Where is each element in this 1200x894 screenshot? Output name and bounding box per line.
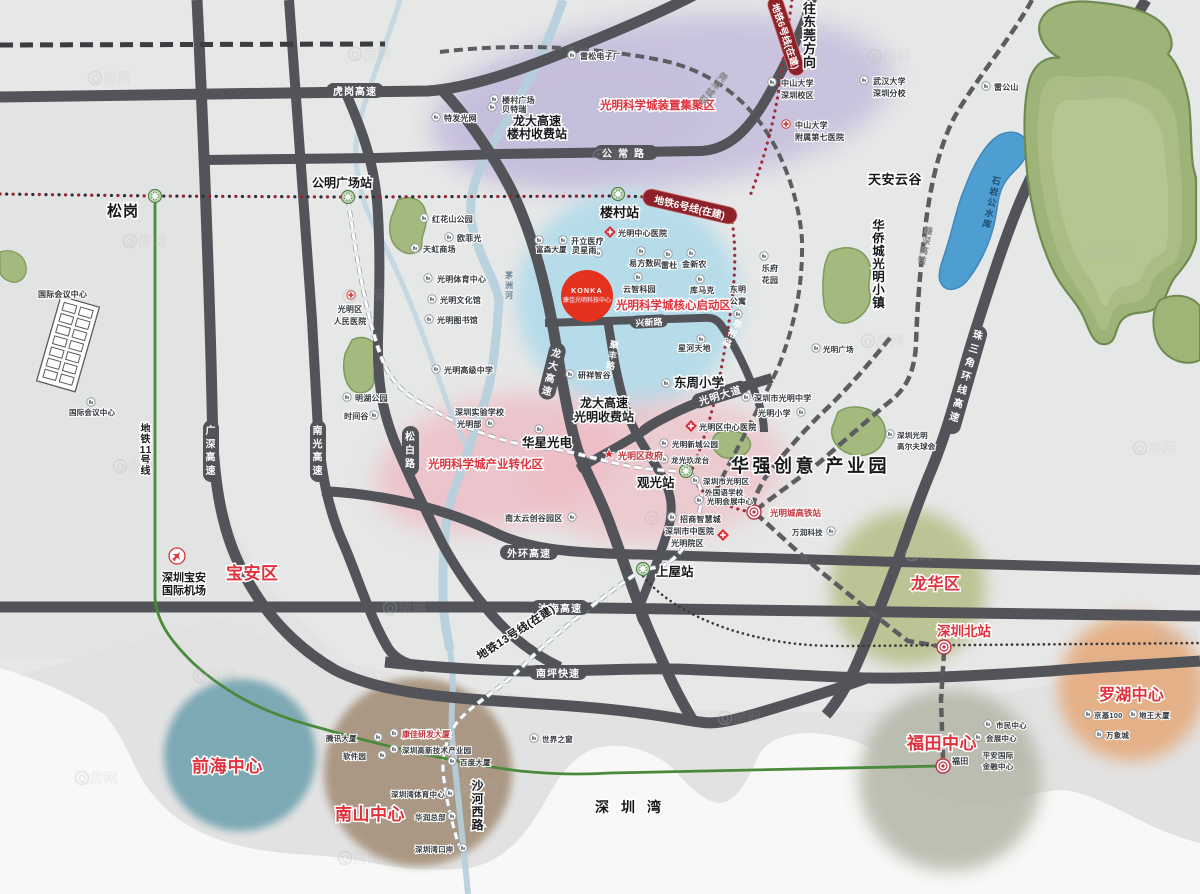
svg-text:研祥智谷: 研祥智谷 [578, 370, 612, 380]
svg-text:光明区中心医院: 光明区中心医院 [698, 422, 756, 432]
svg-text:星河天地: 星河天地 [678, 343, 711, 353]
svg-text:国际会议中心: 国际会议中心 [38, 289, 87, 299]
svg-text:楼村收费站: 楼村收费站 [507, 126, 567, 141]
svg-text:人民医院: 人民医院 [334, 316, 367, 326]
svg-text:光明广场: 光明广场 [822, 344, 854, 354]
svg-text:光明科学城产业转化区: 光明科学城产业转化区 [427, 457, 543, 471]
svg-text:深圳光明: 深圳光明 [897, 430, 928, 440]
svg-text:楼村广场: 楼村广场 [502, 95, 535, 105]
svg-text:前海中心: 前海中心 [192, 756, 263, 776]
svg-text:欧菲光: 欧菲光 [457, 233, 482, 243]
svg-text:华润总部: 华润总部 [415, 812, 446, 822]
svg-text:茅洲河: 茅洲河 [504, 270, 513, 300]
svg-text:时间谷: 时间谷 [344, 411, 369, 421]
svg-text:光明会展中心: 光明会展中心 [706, 496, 753, 506]
svg-text:公寓: 公寓 [730, 296, 746, 306]
svg-text:光明部: 光明部 [456, 419, 482, 429]
svg-text:深圳市中医院: 深圳市中医院 [665, 526, 714, 536]
svg-text:光明文化馆: 光明文化馆 [439, 295, 481, 305]
svg-text:深圳湾: 深圳湾 [595, 799, 673, 815]
svg-text:软件园: 软件园 [343, 751, 366, 761]
svg-text:万润科技: 万润科技 [791, 527, 823, 537]
svg-text:往东莞方向: 往东莞方向 [803, 1, 817, 70]
svg-text:开立医疗: 开立医疗 [571, 236, 604, 246]
svg-text:深圳实验学校: 深圳实验学校 [455, 407, 505, 417]
svg-text:光明体育中心: 光明体育中心 [436, 274, 486, 284]
svg-text:松岗: 松岗 [107, 202, 139, 220]
svg-text:深圳市光明中学: 深圳市光明中学 [754, 393, 811, 403]
svg-text:光明区: 光明区 [337, 304, 363, 314]
svg-text:龙大高速: 龙大高速 [513, 113, 561, 128]
svg-text:光明图书馆: 光明图书馆 [436, 315, 478, 325]
svg-text:光明高级中学: 光明高级中学 [443, 365, 493, 375]
svg-text:腾讯大厦: 腾讯大厦 [325, 733, 357, 743]
svg-text:龙华区: 龙华区 [910, 574, 961, 593]
svg-text:上屋站: 上屋站 [656, 564, 694, 579]
svg-text:光明新城公园: 光明新城公园 [671, 439, 718, 449]
svg-text:易方数码: 易方数码 [629, 258, 662, 268]
svg-text:库马克: 库马克 [690, 285, 715, 295]
svg-text:松白路: 松白路 [405, 430, 416, 470]
svg-text:KONKA: KONKA [571, 288, 603, 295]
svg-text:金新农: 金新农 [681, 259, 707, 269]
svg-text:深圳校区: 深圳校区 [781, 90, 814, 100]
svg-text:东明: 东明 [730, 284, 746, 294]
svg-text:光明科学城核心启动区: 光明科学城核心启动区 [615, 298, 731, 312]
svg-text:宝安区: 宝安区 [226, 563, 279, 583]
svg-text:百度大厦: 百度大厦 [460, 757, 491, 767]
svg-text:富森大厦: 富森大厦 [536, 244, 567, 254]
svg-text:福田: 福田 [951, 756, 968, 766]
svg-text:虎岗高速: 虎岗高速 [333, 85, 377, 98]
svg-text:楼村站: 楼村站 [600, 205, 639, 220]
svg-text:深圳宝安: 深圳宝安 [162, 570, 206, 584]
svg-text:光明小学: 光明小学 [757, 408, 791, 418]
svg-text:会展中心: 会展中心 [986, 733, 1017, 743]
svg-text:福田中心: 福田中心 [906, 733, 977, 753]
svg-text:高尔夫球会: 高尔夫球会 [897, 441, 936, 451]
svg-text:天安云谷: 天安云谷 [868, 172, 923, 187]
svg-text:雷松电子厂: 雷松电子厂 [580, 51, 621, 61]
svg-text:光明区政府: 光明区政府 [617, 450, 663, 461]
svg-text:雷杜: 雷杜 [661, 260, 677, 270]
svg-text:兴新路: 兴新路 [635, 316, 664, 328]
svg-text:中山大学: 中山大学 [781, 78, 814, 88]
svg-text:特发光网: 特发光网 [444, 113, 477, 123]
svg-text:深圳高新技术产业园: 深圳高新技术产业园 [402, 745, 472, 755]
svg-text:国际机场: 国际机场 [162, 583, 206, 597]
svg-text:明湖公园: 明湖公园 [355, 393, 388, 403]
svg-text:深圳湾体育中心: 深圳湾体育中心 [391, 789, 445, 799]
svg-text:南山中心: 南山中心 [335, 804, 405, 824]
svg-text:外环高速: 外环高速 [506, 547, 551, 560]
svg-text:附属第七医院: 附属第七医院 [795, 132, 844, 142]
svg-text:乐府: 乐府 [762, 263, 778, 273]
svg-text:康佳研发大厦: 康佳研发大厦 [402, 729, 451, 739]
svg-text:万象城: 万象城 [1105, 730, 1129, 740]
svg-text:武汉大学: 武汉大学 [873, 76, 906, 86]
svg-text:中山大学: 中山大学 [795, 120, 828, 130]
svg-text:花园: 花园 [762, 275, 778, 285]
svg-text:贝特瑞: 贝特瑞 [502, 104, 527, 114]
svg-text:深圳北站: 深圳北站 [937, 623, 991, 639]
svg-text:深圳市光明区: 深圳市光明区 [703, 476, 749, 486]
svg-text:公明广场站: 公明广场站 [312, 175, 372, 190]
svg-text:华侨城光明小镇: 华侨城光明小镇 [871, 218, 886, 310]
svg-text:灵星雨: 灵星雨 [571, 245, 597, 255]
svg-text:光明院区: 光明院区 [670, 538, 704, 548]
svg-text:深圳湾口岸: 深圳湾口岸 [415, 844, 454, 854]
svg-text:龙光玖龙台: 龙光玖龙台 [671, 455, 710, 465]
svg-text:光明城高铁站: 光明城高铁站 [769, 508, 822, 518]
svg-text:外国语学校: 外国语学校 [705, 487, 744, 497]
svg-text:市民中心: 市民中心 [996, 720, 1027, 730]
svg-text:深圳分校: 深圳分校 [873, 88, 907, 98]
svg-text:国际会议中心: 国际会议中心 [69, 407, 115, 417]
svg-text:天虹商场: 天虹商场 [423, 244, 456, 254]
svg-text:南太云创谷园区: 南太云创谷园区 [505, 513, 562, 523]
svg-text:华强创意 产业园: 华强创意 产业园 [731, 455, 890, 476]
svg-text:地王大厦: 地王大厦 [1139, 710, 1170, 720]
svg-text:红花山公园: 红花山公园 [432, 214, 473, 224]
svg-text:光明中心医院: 光明中心医院 [617, 228, 667, 238]
svg-text:罗湖中心: 罗湖中心 [1099, 685, 1164, 704]
svg-text:京基100: 京基100 [1094, 710, 1123, 720]
svg-text:云智科园: 云智科园 [623, 284, 656, 294]
svg-text:南坪快速: 南坪快速 [536, 667, 580, 680]
svg-text:雷公山: 雷公山 [994, 82, 1019, 92]
svg-text:观光站: 观光站 [637, 475, 675, 490]
svg-text:世界之窗: 世界之窗 [542, 734, 573, 744]
svg-text:华星光电: 华星光电 [522, 435, 573, 450]
svg-text:东周小学: 东周小学 [674, 375, 725, 390]
svg-text:康佳光明科技中心: 康佳光明科技中心 [562, 296, 611, 304]
